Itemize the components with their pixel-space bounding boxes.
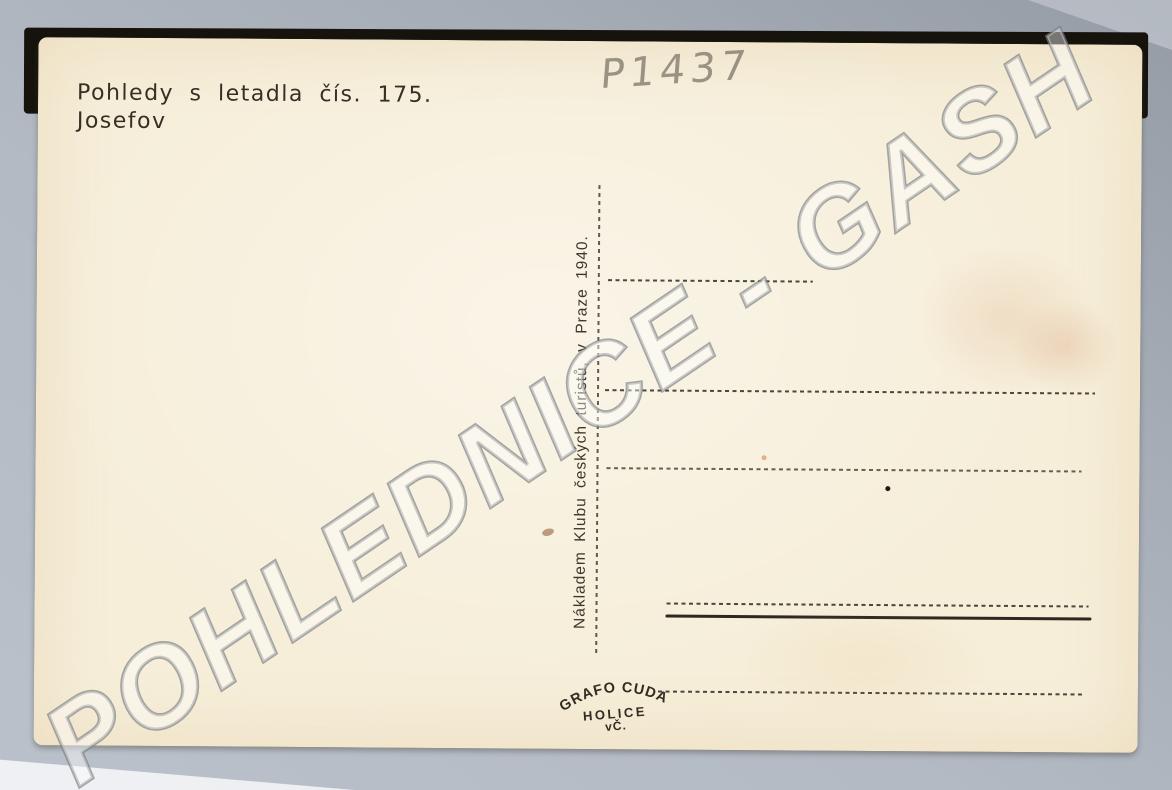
paper-speck (541, 527, 555, 538)
stamp-region-text: vČ. (605, 717, 628, 734)
handwritten-number: P1437 (599, 39, 802, 98)
series-title: Pohledy s letadla čís. 175. (77, 79, 433, 109)
address-line-top (608, 279, 813, 282)
paper-speck (762, 455, 767, 460)
ink-dot (885, 486, 890, 491)
place-name: Josefov (77, 107, 433, 137)
address-line-lower (606, 467, 1081, 472)
divider-dashed-line (595, 185, 600, 655)
printer-stamp: GRAFO CUDA HOLICE vČ. (537, 662, 692, 738)
postcard: Pohledy s letadla čís. 175. Josefov P143… (34, 37, 1143, 753)
photo-scene: Pohledy s letadla čís. 175. Josefov P143… (0, 0, 1172, 790)
background-highlight-wedge (0, 748, 410, 790)
paper-stain (734, 602, 995, 724)
publisher-imprint: Nákladem Klubu českých turistů, v Praze … (569, 267, 594, 629)
paper-stain (1011, 299, 1122, 395)
postcard-header: Pohledy s letadla čís. 175. Josefov (77, 79, 433, 137)
